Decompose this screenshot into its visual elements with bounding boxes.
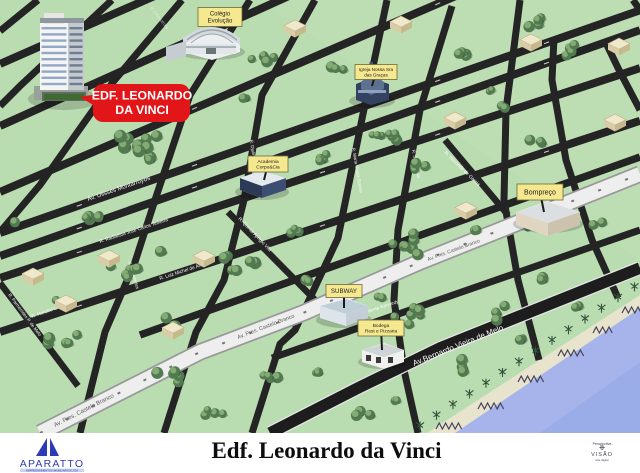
svg-text:EDF. LEONARDO: EDF. LEONARDO: [92, 89, 193, 103]
svg-text:das Graças: das Graças: [364, 72, 388, 77]
svg-text:Corpo&Cia: Corpo&Cia: [256, 165, 280, 171]
svg-text:Bodega: Bodega: [373, 323, 390, 329]
svg-text:DA VINCI: DA VINCI: [115, 103, 169, 117]
svg-text:Evolução: Evolução: [208, 19, 233, 25]
svg-text:Bompreço: Bompreço: [524, 189, 556, 196]
svg-text:Igreja Nossa Sra: Igreja Nossa Sra: [359, 67, 394, 72]
svg-text:Rest e Pizzaria: Rest e Pizzaria: [365, 329, 398, 335]
svg-text:Colégio: Colégio: [210, 12, 231, 18]
svg-text:SUBWAY: SUBWAY: [331, 288, 357, 295]
svg-text:Academia: Academia: [257, 159, 279, 165]
svg-text:EMPREENDIMENTOS IMOBILIARIOS L: EMPREENDIMENTOS IMOBILIARIOS LTDA: [26, 468, 78, 472]
